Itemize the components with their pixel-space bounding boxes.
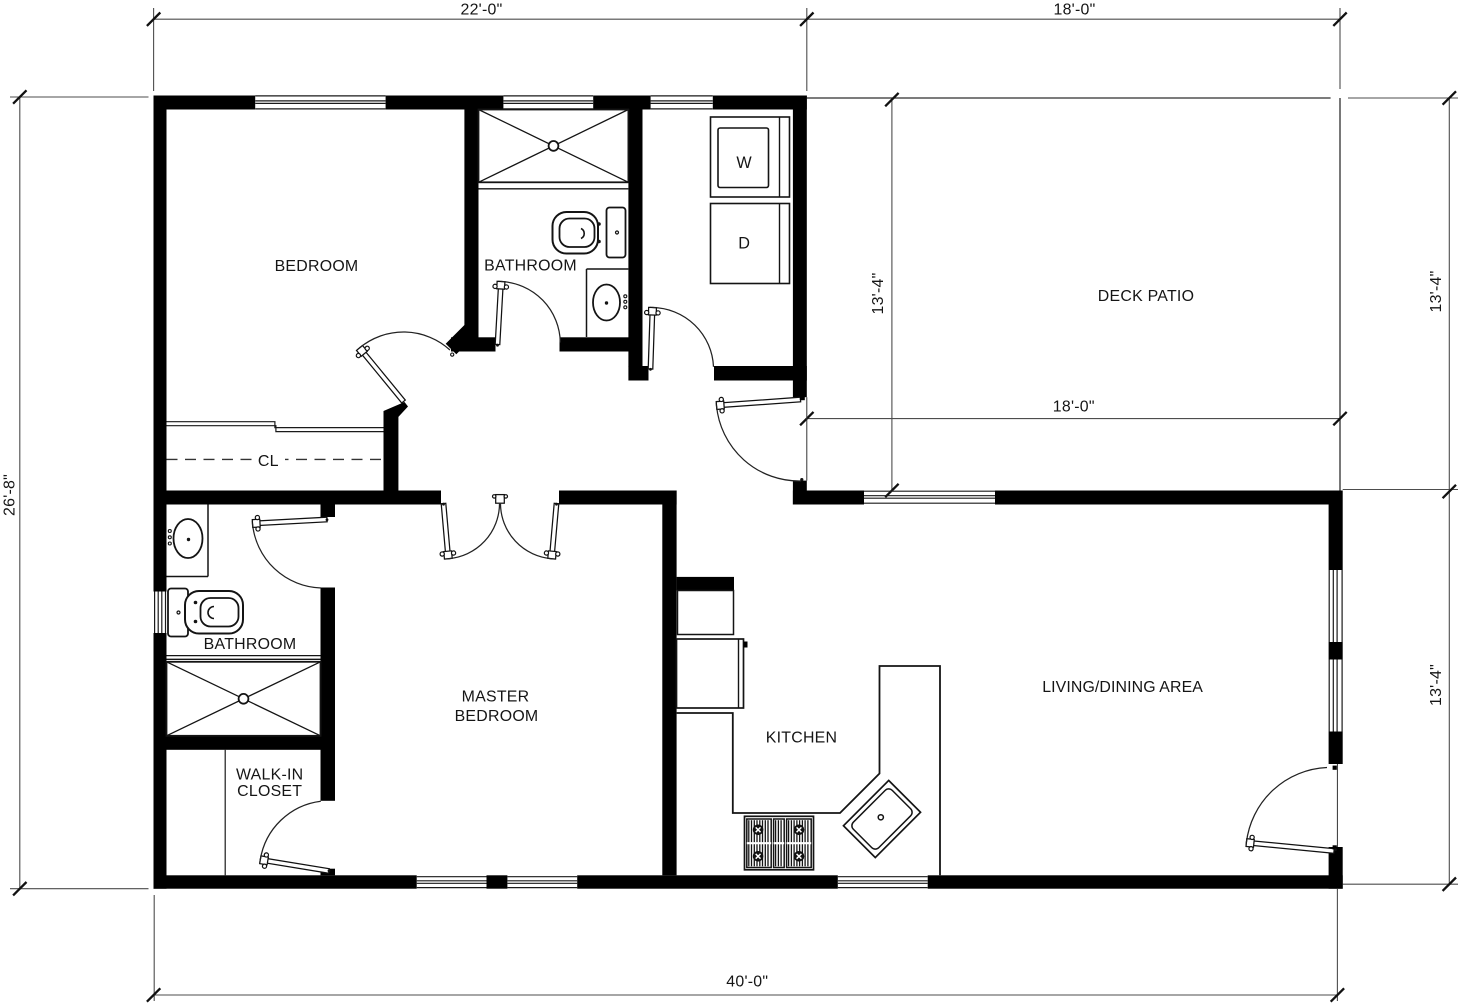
svg-text:DECK PATIO: DECK PATIO (1098, 288, 1194, 305)
svg-text:BEDROOM: BEDROOM (455, 708, 539, 725)
svg-text:18'-0": 18'-0" (1054, 2, 1096, 19)
svg-text:22'-0": 22'-0" (461, 2, 503, 19)
svg-text:13'-4": 13'-4" (1428, 271, 1445, 313)
svg-text:KITCHEN: KITCHEN (766, 729, 838, 746)
svg-text:13'-4": 13'-4" (1428, 664, 1445, 706)
svg-text:BATHROOM: BATHROOM (484, 257, 577, 274)
svg-text:26'-8": 26'-8" (2, 474, 19, 516)
svg-text:40'-0": 40'-0" (726, 974, 768, 991)
svg-text:MASTER: MASTER (462, 688, 530, 705)
svg-text:D: D (738, 235, 750, 253)
svg-text:CLOSET: CLOSET (237, 783, 302, 800)
svg-text:CL: CL (258, 453, 279, 470)
svg-text:W: W (736, 154, 752, 172)
svg-text:BATHROOM: BATHROOM (204, 636, 297, 653)
svg-text:13'-4": 13'-4" (870, 273, 887, 315)
svg-text:LIVING/DINING AREA: LIVING/DINING AREA (1042, 679, 1203, 696)
svg-text:WALK-IN: WALK-IN (236, 767, 303, 784)
svg-text:BEDROOM: BEDROOM (275, 258, 359, 275)
svg-text:18'-0": 18'-0" (1053, 399, 1095, 416)
